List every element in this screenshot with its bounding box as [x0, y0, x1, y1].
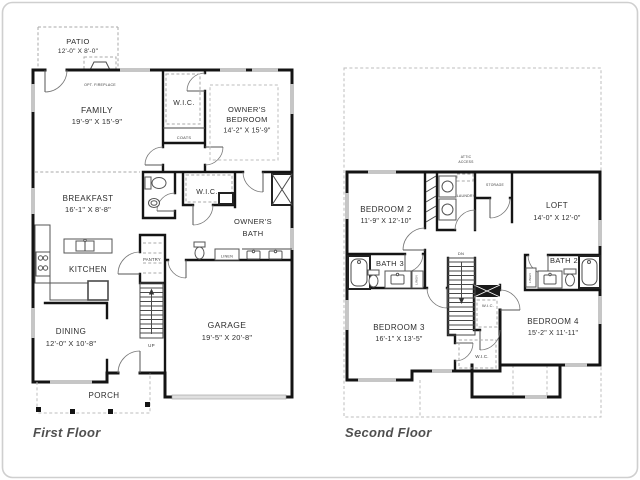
pantry-label: PANTRY	[143, 257, 161, 262]
wic-lower2-label: W.I.C.	[475, 354, 488, 359]
stairs-down-label: DN	[458, 251, 464, 256]
owners-bedroom-dims: 14'-2" X 15'-9"	[223, 128, 271, 135]
floor-plan-image: PATIO 12'-0" X 8'-0" OPT. FIREPLACE FAMI…	[0, 0, 640, 480]
bedroom3-dims: 16'-1" X 13'-5"	[375, 336, 423, 343]
wic-upper-label: W.I.C.	[173, 100, 194, 107]
owners-bath-toilet-icon	[194, 242, 205, 259]
family-dims: 19'-9" X 15'-9"	[72, 117, 123, 126]
stairs-up-label: UP	[148, 343, 155, 348]
bedroom3-label: BEDROOM 3	[373, 323, 425, 332]
owners-bedroom-label-2: BEDROOM	[226, 115, 268, 124]
owners-bath-label-1: OWNER'S	[234, 217, 272, 226]
breakfast-dims: 16'-1" X 8'-8"	[65, 205, 111, 214]
bath2-label: BATH 2	[550, 256, 578, 265]
owners-bath-label-2: BATH	[242, 229, 263, 238]
kitchen-island	[64, 239, 112, 253]
bedroom4-dims: 15'-2" X 11'-11"	[528, 330, 579, 337]
attic-access-label-2: ACCESS	[458, 160, 474, 164]
garage-door	[172, 395, 286, 399]
porch-post	[70, 409, 75, 414]
powder-sink-icon	[149, 199, 160, 208]
wic-hall-label: W.I.C.	[196, 189, 217, 196]
linen-label: LINEN	[221, 255, 233, 259]
loft-dims: 14'-0" X 12'-0"	[533, 215, 581, 222]
wic-upper2-label: W.I.C.	[482, 303, 494, 308]
coats-label: COATS	[177, 135, 192, 140]
dining-label: DINING	[56, 327, 86, 336]
bedroom2-dims: 11'-9" X 12'-10"	[361, 218, 412, 225]
opt-fireplace-label: OPT. FIREPLACE	[84, 83, 116, 87]
bedroom4-label: BEDROOM 4	[527, 317, 579, 326]
bath3-vanity	[385, 271, 411, 288]
storage-label: STORAGE	[486, 183, 504, 187]
family-label: FAMILY	[81, 105, 113, 115]
bedroom2-label: BEDROOM 2	[360, 205, 412, 214]
bath2-tub-icon	[579, 256, 600, 288]
porch-post	[108, 409, 113, 414]
bath3-linen-label: LINEN	[415, 275, 419, 285]
attic-access-label-1: ATTIC	[461, 155, 472, 159]
dining-dims: 12'-0" X 10'-8"	[46, 339, 97, 348]
wic-hall-bench	[219, 193, 233, 204]
porch-post	[145, 402, 150, 407]
garage-dims: 19'-5" X 20'-8"	[202, 333, 253, 342]
kitchen-label: KITCHEN	[69, 265, 107, 274]
powder-toilet-icon	[145, 177, 166, 189]
stove-icon	[36, 252, 50, 276]
patio-dims: 12'-0" X 8'-0"	[58, 48, 99, 55]
breakfast-label: BREAKFAST	[63, 194, 114, 203]
bath3-tub-icon	[348, 256, 370, 289]
owners-bath-shower-icon	[272, 174, 292, 205]
first-floor-title: First Floor	[33, 425, 101, 440]
bath3-toilet-icon	[368, 270, 379, 287]
porch-post	[36, 407, 41, 412]
porch-label: PORCH	[89, 391, 120, 400]
mechanical-chase	[474, 285, 500, 297]
bath2-vanity	[538, 271, 562, 288]
loft-label: LOFT	[546, 201, 568, 210]
patio-label: PATIO	[66, 37, 89, 46]
bath2-linen-label: LINEN	[528, 273, 532, 283]
owners-bedroom-label-1: OWNER'S	[228, 105, 266, 114]
garage-label: GARAGE	[208, 320, 247, 330]
laundry-label: LAUNDRY	[457, 194, 476, 198]
second-floor-title: Second Floor	[345, 425, 432, 440]
bath3-label: BATH 3	[376, 259, 404, 268]
bath2-toilet-icon	[564, 269, 576, 286]
